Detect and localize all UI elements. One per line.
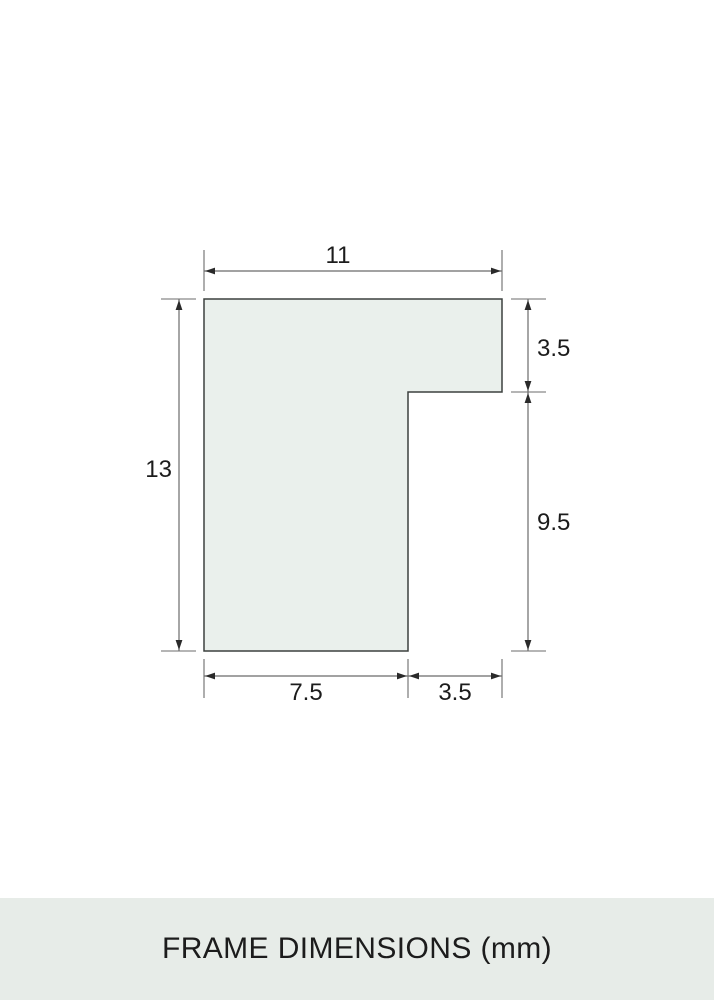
- caption-text: FRAME DIMENSIONS (mm): [162, 932, 552, 966]
- diagram-area: 11 13 3.5: [0, 0, 714, 898]
- frame-profile-diagram: 11 13 3.5: [0, 0, 714, 898]
- arrowhead-left: [205, 673, 215, 680]
- dimension-label: 13: [145, 456, 172, 483]
- arrowhead-left: [205, 268, 215, 275]
- arrowhead-left: [409, 673, 419, 680]
- dimension-label: 3.5: [438, 679, 471, 706]
- dimension-right-upper: 3.5: [511, 299, 570, 392]
- arrowhead-right: [397, 673, 407, 680]
- arrowhead-right: [491, 673, 501, 680]
- dimension-top-width: 11: [204, 242, 502, 291]
- dimension-label: 9.5: [537, 509, 570, 536]
- arrowhead-right: [491, 268, 501, 275]
- dimension-left-height: 13: [145, 299, 196, 651]
- dimension-bottom-left: 7.5: [204, 659, 408, 706]
- page: 11 13 3.5: [0, 0, 714, 1000]
- arrowhead-down: [525, 381, 532, 391]
- arrowhead-down: [525, 640, 532, 650]
- dimension-bottom-right: 3.5: [408, 659, 502, 706]
- caption-band: FRAME DIMENSIONS (mm): [0, 898, 714, 1000]
- arrowhead-up: [525, 393, 532, 403]
- profile-polygon: [204, 299, 502, 651]
- arrowhead-up: [176, 300, 183, 310]
- dimension-label: 3.5: [537, 335, 570, 362]
- arrowhead-down: [176, 640, 183, 650]
- arrowhead-up: [525, 300, 532, 310]
- dimension-label: 7.5: [289, 679, 322, 706]
- profile-shape: [204, 299, 502, 651]
- dimension-label: 11: [326, 242, 351, 269]
- dimension-right-lower: 9.5: [511, 392, 570, 651]
